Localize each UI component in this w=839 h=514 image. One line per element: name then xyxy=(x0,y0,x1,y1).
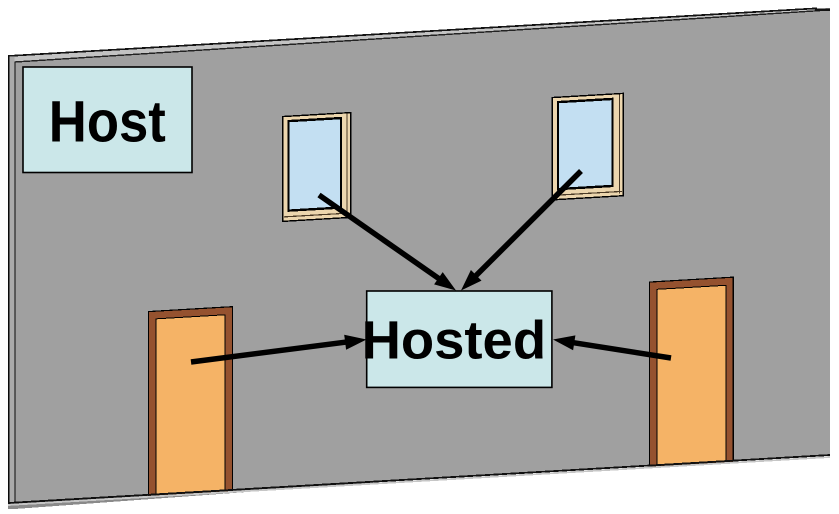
svg-text:Host: Host xyxy=(49,89,166,154)
svg-text:Hosted: Hosted xyxy=(362,311,546,370)
